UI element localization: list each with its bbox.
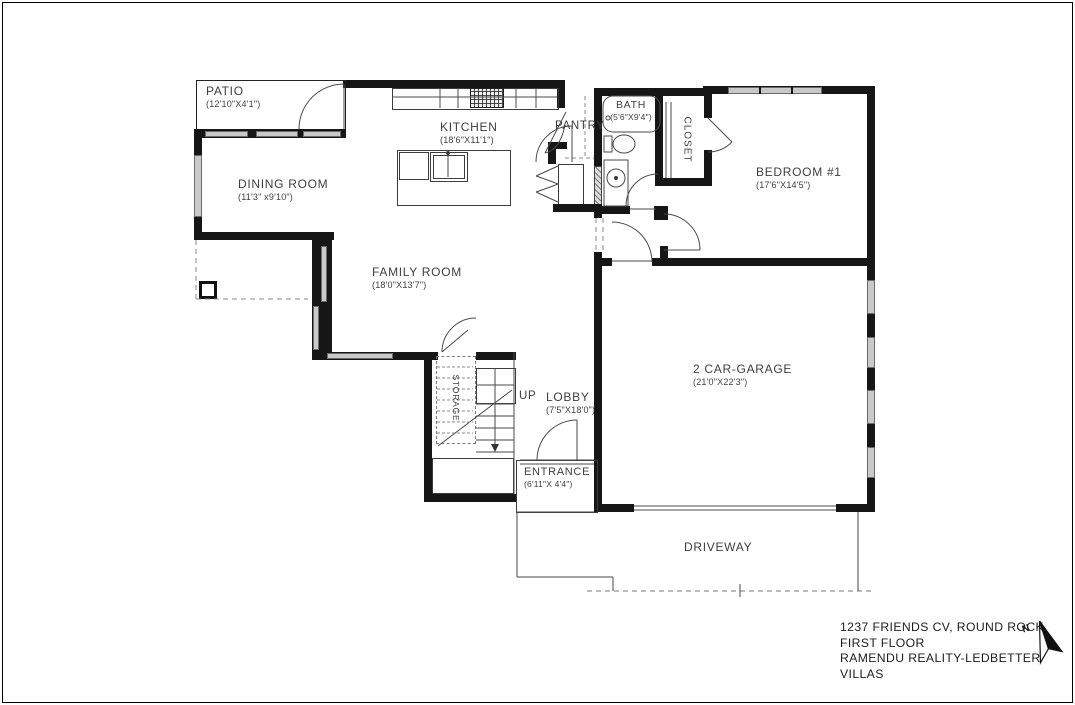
door-arc — [536, 176, 558, 184]
door-arc — [537, 420, 577, 460]
room-dims: (11'3" x9'10") — [238, 192, 328, 202]
room-dims: (17'6"X14'5") — [756, 180, 842, 190]
up-text: UP — [519, 390, 536, 402]
room-label-closet: CLOSET — [682, 110, 693, 170]
room-name: DRIVEWAY — [684, 540, 752, 554]
door-arc — [612, 222, 652, 262]
room-name: STORAGE — [451, 374, 461, 421]
room-label-lobby: LOBBY (7'5"X18'0") — [546, 390, 595, 415]
room-label-entrance: ENTRANCE (6'11"X 4'4") — [524, 466, 590, 489]
room-name: BATH — [610, 99, 652, 111]
room-label-pantry: PANTRY — [555, 120, 605, 132]
title-line-address: 1237 FRIENDS CV, ROUND ROCK. — [840, 620, 1075, 636]
door-arc — [536, 184, 558, 192]
toilet — [613, 135, 635, 153]
door-leaf — [442, 330, 468, 352]
room-name: BEDROOM #1 — [756, 165, 842, 179]
room-name: KITCHEN — [440, 120, 498, 134]
room-label-family: FAMILY ROOM (18'0"X13'7") — [372, 265, 462, 290]
stair-arrowhead — [491, 444, 499, 452]
title-line-floor: FIRST FLOOR — [840, 636, 1075, 652]
room-name: DINING ROOM — [238, 177, 328, 191]
room-dims: (7'5"X18'0") — [546, 405, 595, 415]
door-leaf — [536, 166, 558, 176]
room-name: ENTRANCE — [524, 466, 590, 478]
bath-vanity — [604, 160, 628, 206]
title-block: 1237 FRIENDS CV, ROUND ROCK. FIRST FLOOR… — [840, 620, 1075, 682]
room-name: FAMILY ROOM — [372, 265, 462, 279]
room-label-patio: PATIO (12'10"X4'1") — [206, 84, 260, 109]
door-arc — [442, 318, 476, 352]
room-label-storage: STORAGE — [451, 358, 461, 438]
floor-plan-canvas: N PATIO (12'10"X4'1") DINING ROOM (11'3"… — [0, 0, 1075, 705]
room-dims: (6'11"X 4'4") — [524, 479, 590, 489]
door-leaf — [708, 118, 732, 142]
sink-drain — [614, 176, 617, 179]
room-label-garage: 2 CAR-GARAGE (21'0"X22'3") — [693, 362, 792, 387]
room-label-bedroom1: BEDROOM #1 (17'6"X14'5") — [756, 165, 842, 190]
room-name: PANTRY — [555, 120, 605, 132]
room-name: PATIO — [206, 84, 260, 98]
door-arc — [708, 142, 732, 152]
room-label-bath: BATH (5'6"X9'4") — [610, 99, 652, 122]
room-dims: (18'0"X13'7") — [372, 280, 462, 290]
plan-linework: N — [0, 0, 1075, 705]
title-line-realty: RAMENDU REALITY-LEDBETTER VILLAS — [840, 651, 1075, 682]
room-dims: (12'10"X4'1") — [206, 99, 260, 109]
room-label-driveway: DRIVEWAY — [684, 540, 752, 554]
room-dims: (18'6"X11'1") — [440, 135, 498, 145]
door-arc — [626, 174, 658, 206]
toilet-tank — [604, 136, 612, 152]
stair-break-line — [438, 390, 512, 446]
room-dims: (5'6"X9'4") — [610, 112, 652, 122]
room-name: CLOSET — [682, 116, 693, 162]
door-leaf — [536, 192, 558, 202]
door-arc — [299, 84, 344, 129]
island-faucet — [446, 151, 449, 154]
room-label-kitchen: KITCHEN (18'6"X11'1") — [440, 120, 498, 145]
stair-up-label: UP — [519, 390, 536, 402]
room-dims: (21'0"X22'3") — [693, 377, 792, 387]
room-label-dining: DINING ROOM (11'3" x9'10") — [238, 177, 328, 202]
door-arc — [664, 214, 700, 250]
room-name: 2 CAR-GARAGE — [693, 362, 792, 376]
room-name: LOBBY — [546, 390, 595, 404]
